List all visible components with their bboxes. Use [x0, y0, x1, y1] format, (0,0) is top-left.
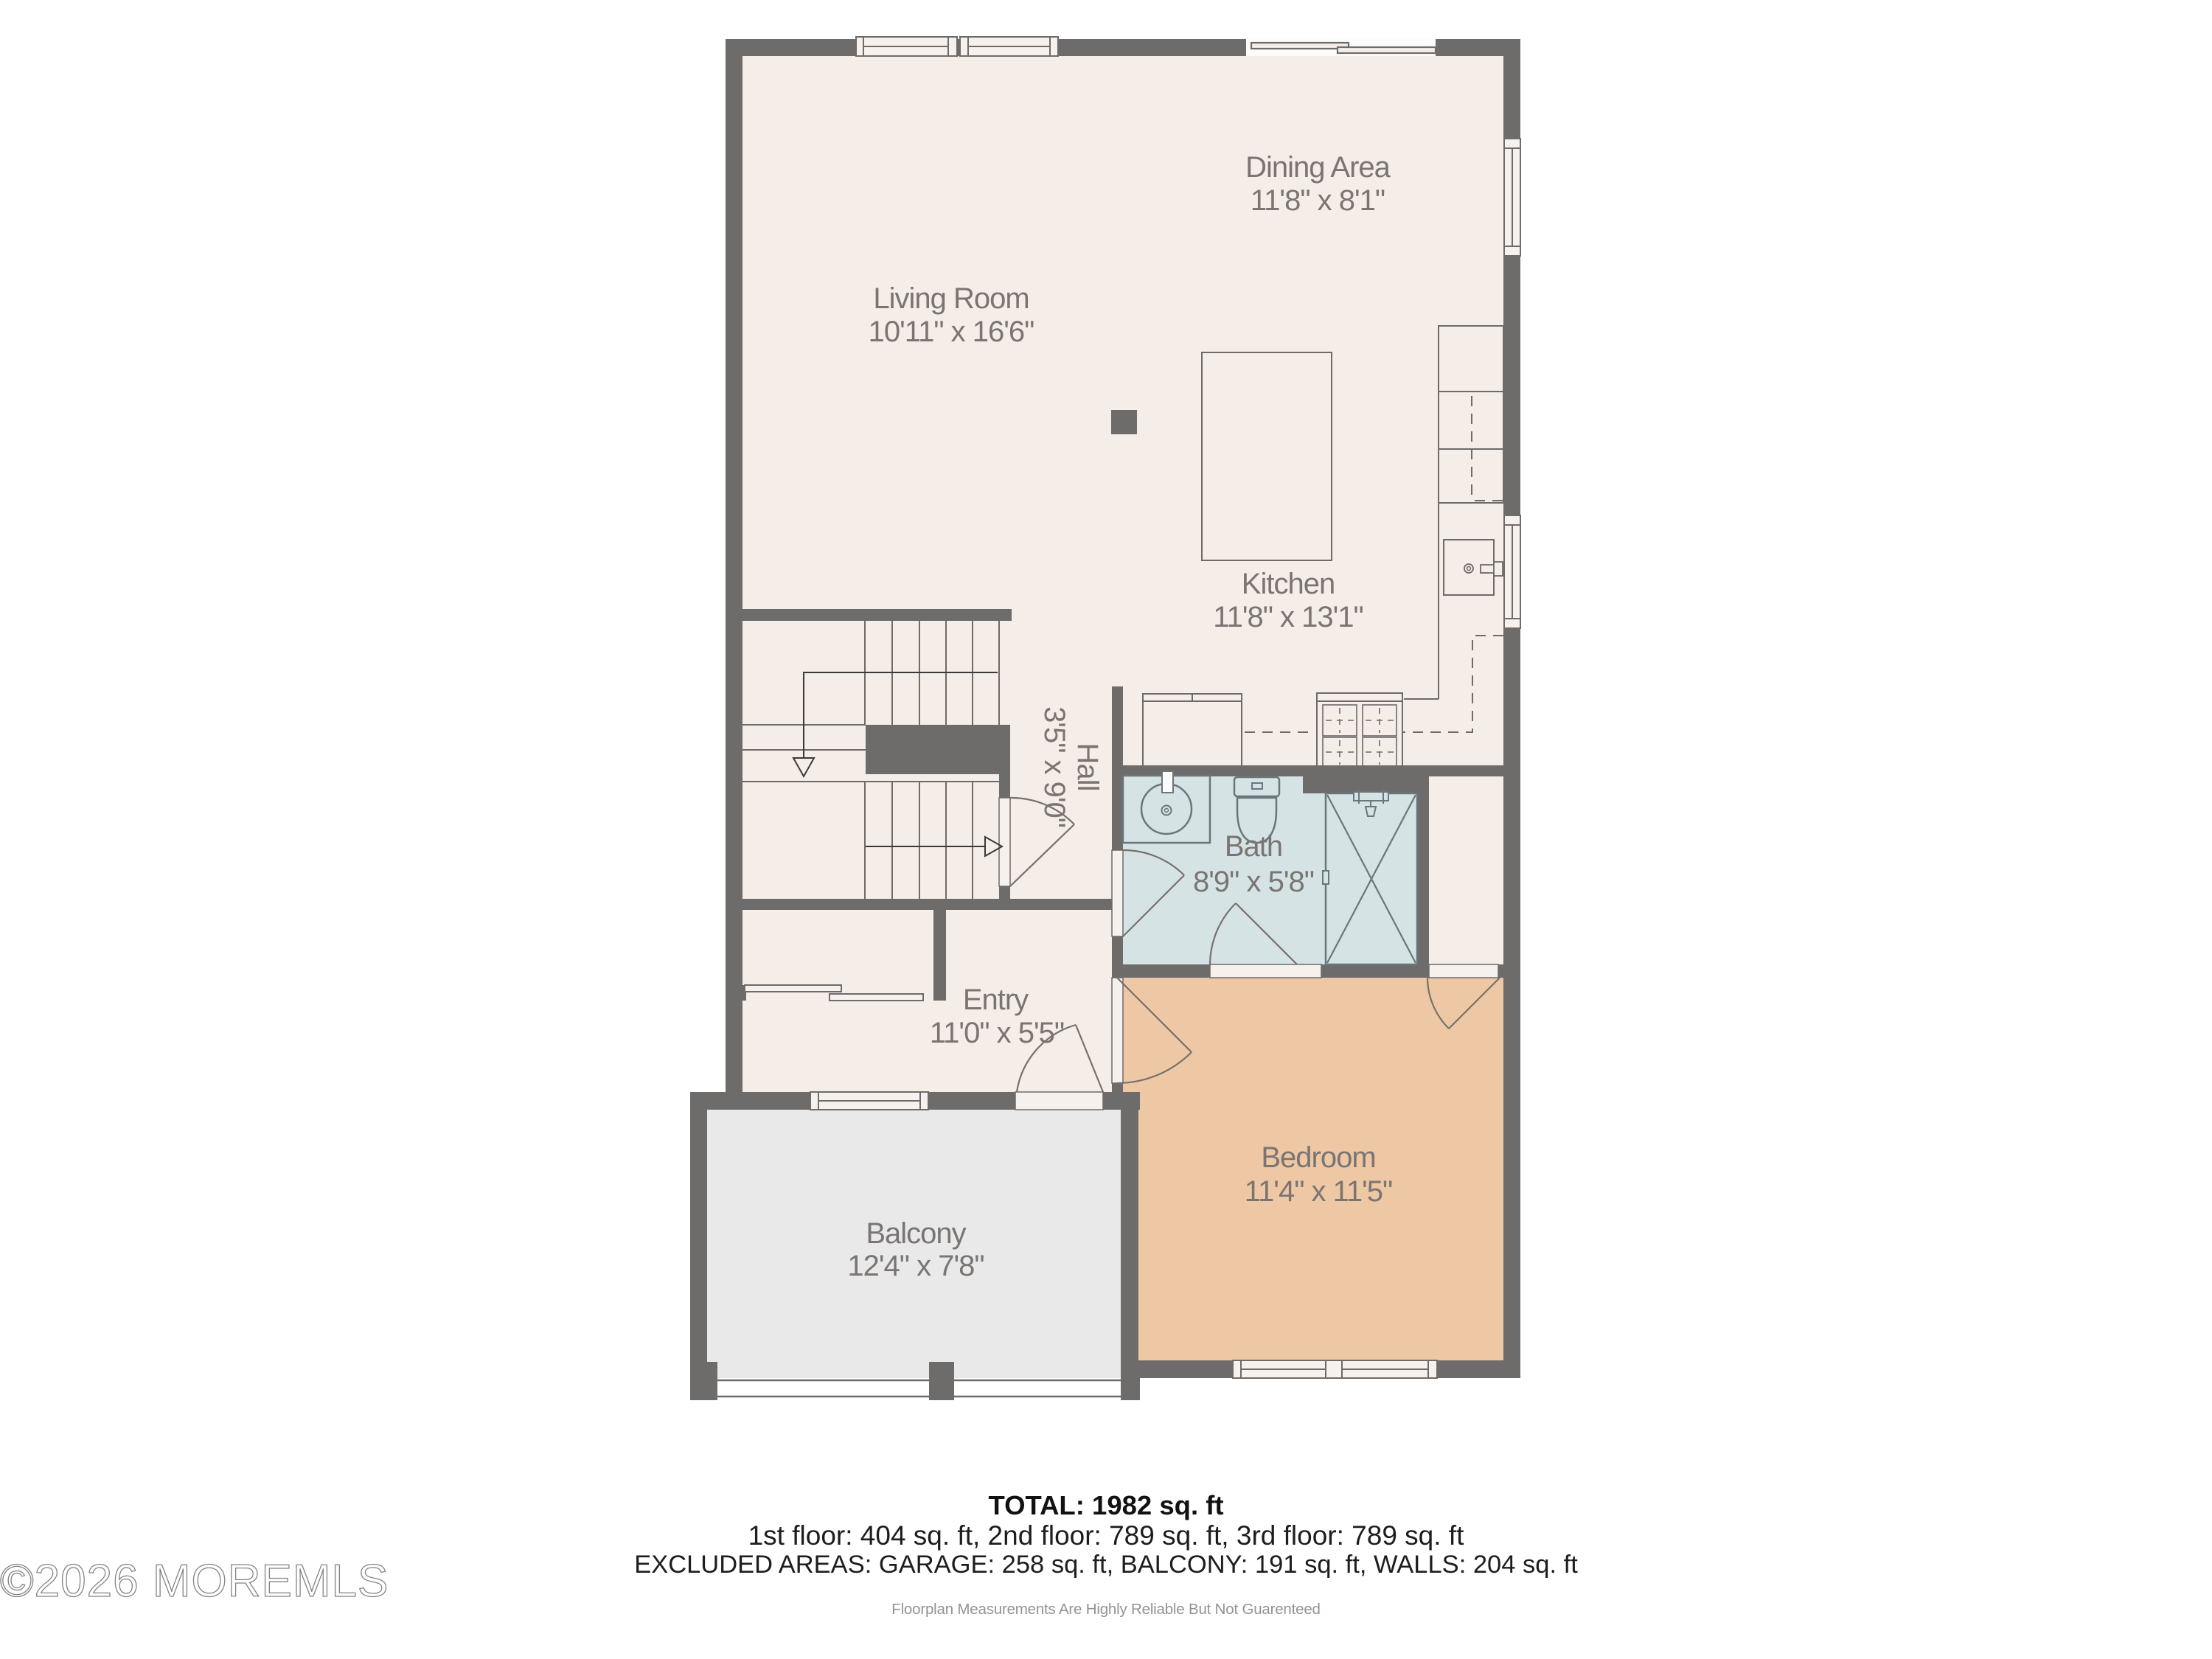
- svg-text:8'9" x 5'8": 8'9" x 5'8": [1193, 866, 1314, 898]
- svg-text:11'8" x 8'1": 11'8" x 8'1": [1251, 184, 1385, 217]
- svg-text:Kitchen: Kitchen: [1242, 568, 1335, 600]
- svg-text:Bath: Bath: [1225, 830, 1282, 863]
- svg-text:11'8" x 13'1": 11'8" x 13'1": [1213, 601, 1363, 633]
- svg-text:Bedroom: Bedroom: [1261, 1141, 1375, 1174]
- svg-text:11'4" x 11'5": 11'4" x 11'5": [1245, 1175, 1392, 1208]
- svg-text:11'0" x 5'5": 11'0" x 5'5": [930, 1017, 1064, 1049]
- svg-text:Dining Area: Dining Area: [1245, 151, 1391, 184]
- svg-text:Living Room: Living Room: [873, 282, 1029, 315]
- svg-text:12'4" x 7'8": 12'4" x 7'8": [847, 1250, 984, 1282]
- svg-text:Balcony: Balcony: [866, 1217, 966, 1250]
- svg-text:Entry: Entry: [963, 984, 1029, 1016]
- svg-text:10'11" x 16'6": 10'11" x 16'6": [869, 316, 1034, 348]
